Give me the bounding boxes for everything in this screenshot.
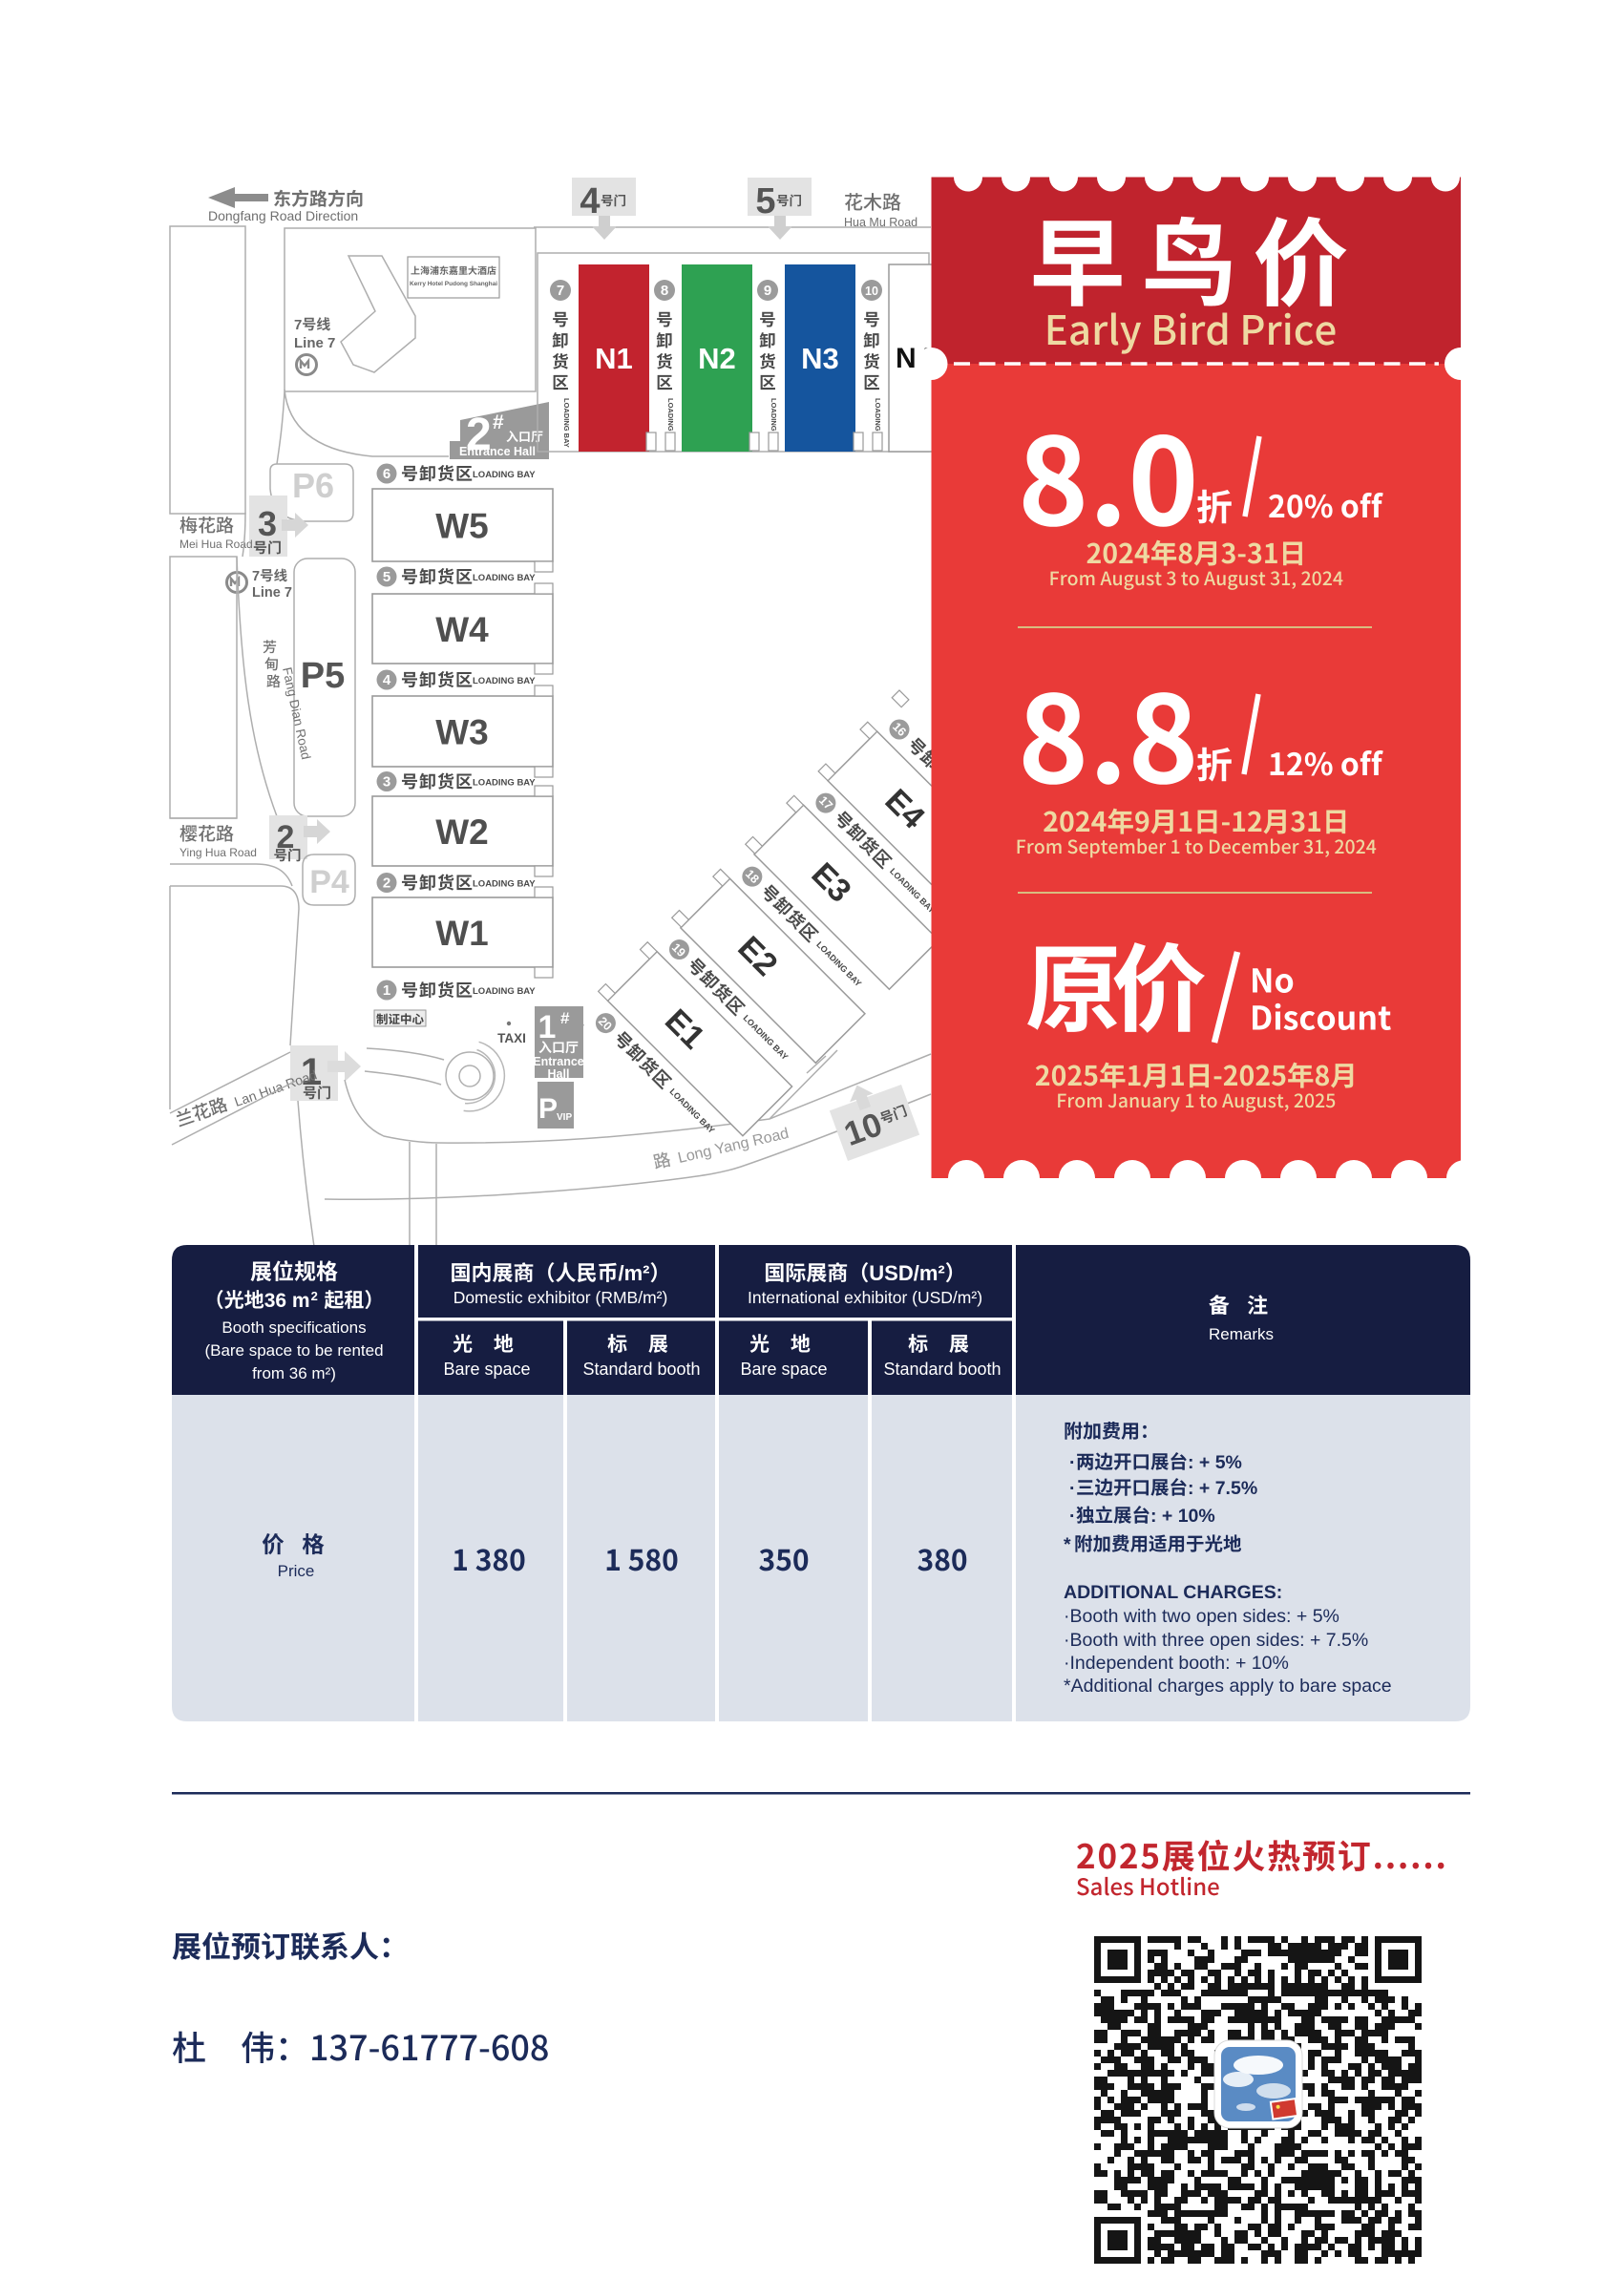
- svg-text:W3: W3: [435, 713, 489, 752]
- svg-text:·: ·: [1069, 1506, 1076, 1527]
- svg-text:N1: N1: [595, 342, 633, 375]
- svg-text:#: #: [560, 1009, 570, 1027]
- svg-text:Remarks: Remarks: [1209, 1325, 1274, 1343]
- svg-text:: + 10%: : + 10%: [1150, 1506, 1215, 1527]
- svg-text:·Booth with three open sides:: ·Booth with three open sides: + 7.5%: [1064, 1630, 1368, 1651]
- svg-text:LOADING BAY: LOADING BAY: [473, 676, 536, 686]
- svg-text:USD/m²: USD/m²: [869, 1261, 944, 1285]
- svg-text:2: 2: [311, 1289, 318, 1303]
- svg-text:P5: P5: [301, 656, 345, 696]
- svg-text:: + 7.5%: : + 7.5%: [1188, 1478, 1257, 1499]
- svg-text:Line 7: Line 7: [252, 585, 292, 601]
- svg-text:Entrance: Entrance: [533, 1055, 584, 1068]
- svg-text:Mei Hua Road: Mei Hua Road: [179, 538, 253, 551]
- svg-text:P4: P4: [309, 864, 349, 900]
- svg-text:Entrance Hall: Entrance Hall: [459, 445, 536, 458]
- svg-text:W1: W1: [435, 914, 489, 953]
- svg-text:36 m: 36 m: [264, 1290, 310, 1312]
- svg-text:7: 7: [557, 283, 564, 299]
- svg-text:3: 3: [383, 774, 390, 791]
- svg-text:1: 1: [383, 982, 390, 999]
- svg-text:4: 4: [383, 672, 391, 688]
- svg-text:*Additional charges apply to b: *Additional charges apply to bare space: [1064, 1676, 1392, 1697]
- svg-text:(Bare space to be rented: (Bare space to be rented: [204, 1341, 383, 1360]
- svg-text:·Independent booth: + 10%: ·Independent booth: + 10%: [1064, 1653, 1289, 1674]
- svg-text:5: 5: [755, 181, 775, 221]
- svg-text:Hall: Hall: [548, 1067, 570, 1081]
- svg-text:from 36 m²): from 36 m²): [252, 1364, 336, 1382]
- svg-text:10: 10: [865, 285, 878, 298]
- svg-text:/m²: /m²: [619, 1261, 650, 1285]
- svg-text:Bare space: Bare space: [443, 1360, 530, 1379]
- svg-text:·: ·: [1069, 1452, 1076, 1473]
- svg-text:9: 9: [764, 283, 771, 299]
- svg-text:Dongfang Road Direction: Dongfang Road Direction: [208, 208, 358, 223]
- svg-text:W5: W5: [435, 507, 489, 546]
- svg-text:Booth specifications: Booth specifications: [221, 1318, 366, 1337]
- svg-text:International exhibitor (USD/m: International exhibitor (USD/m²): [748, 1288, 982, 1307]
- svg-text:ADDITIONAL CHARGES:: ADDITIONAL CHARGES:: [1064, 1582, 1282, 1603]
- svg-text:P: P: [538, 1093, 558, 1125]
- svg-text:5: 5: [383, 569, 390, 585]
- svg-text:VIP: VIP: [557, 1112, 572, 1123]
- svg-text:·: ·: [1069, 1478, 1076, 1499]
- svg-text:Standard booth: Standard booth: [582, 1360, 700, 1379]
- svg-text:LOADING BAY: LOADING BAY: [473, 470, 536, 480]
- svg-text:1: 1: [538, 1009, 557, 1045]
- svg-text:Bare space: Bare space: [740, 1360, 827, 1379]
- svg-text:7: 7: [294, 317, 302, 333]
- svg-text:Price: Price: [278, 1562, 315, 1580]
- svg-text:LOADING BAY: LOADING BAY: [473, 778, 536, 789]
- svg-text:#: #: [493, 411, 504, 433]
- svg-text:N2: N2: [698, 342, 736, 375]
- svg-text:Hua Mu Road: Hua Mu Road: [844, 216, 917, 229]
- svg-text:*: *: [1064, 1534, 1071, 1555]
- svg-text:LOADING BAY: LOADING BAY: [562, 398, 571, 448]
- svg-text:N3: N3: [801, 342, 839, 375]
- svg-text:P6: P6: [292, 466, 334, 505]
- svg-text:Ying Hua Road: Ying Hua Road: [179, 846, 257, 859]
- svg-text:4: 4: [580, 181, 600, 221]
- svg-text:LOADING BAY: LOADING BAY: [473, 986, 536, 997]
- svg-text:LOADING BAY: LOADING BAY: [473, 879, 536, 890]
- svg-text:Standard booth: Standard booth: [883, 1360, 1001, 1379]
- svg-text:LOADING BAY: LOADING BAY: [473, 573, 536, 583]
- svg-text:3: 3: [258, 504, 277, 543]
- svg-text:6: 6: [383, 466, 390, 482]
- svg-text:2: 2: [383, 875, 390, 892]
- svg-text:W4: W4: [435, 610, 489, 649]
- svg-text:TAXI: TAXI: [497, 1031, 526, 1045]
- svg-text:·Booth with two open sides: +: ·Booth with two open sides: + 5%: [1064, 1606, 1339, 1627]
- svg-text:7: 7: [252, 569, 260, 584]
- svg-text:8: 8: [661, 283, 668, 299]
- svg-text:W2: W2: [435, 812, 489, 852]
- svg-text:Kerry Hotel Pudong Shanghai: Kerry Hotel Pudong Shanghai: [410, 281, 497, 287]
- svg-text:Domestic exhibitor (RMB/m²): Domestic exhibitor (RMB/m²): [453, 1288, 668, 1307]
- svg-text:Line 7: Line 7: [294, 335, 335, 351]
- svg-text:: + 5%: : + 5%: [1188, 1452, 1242, 1473]
